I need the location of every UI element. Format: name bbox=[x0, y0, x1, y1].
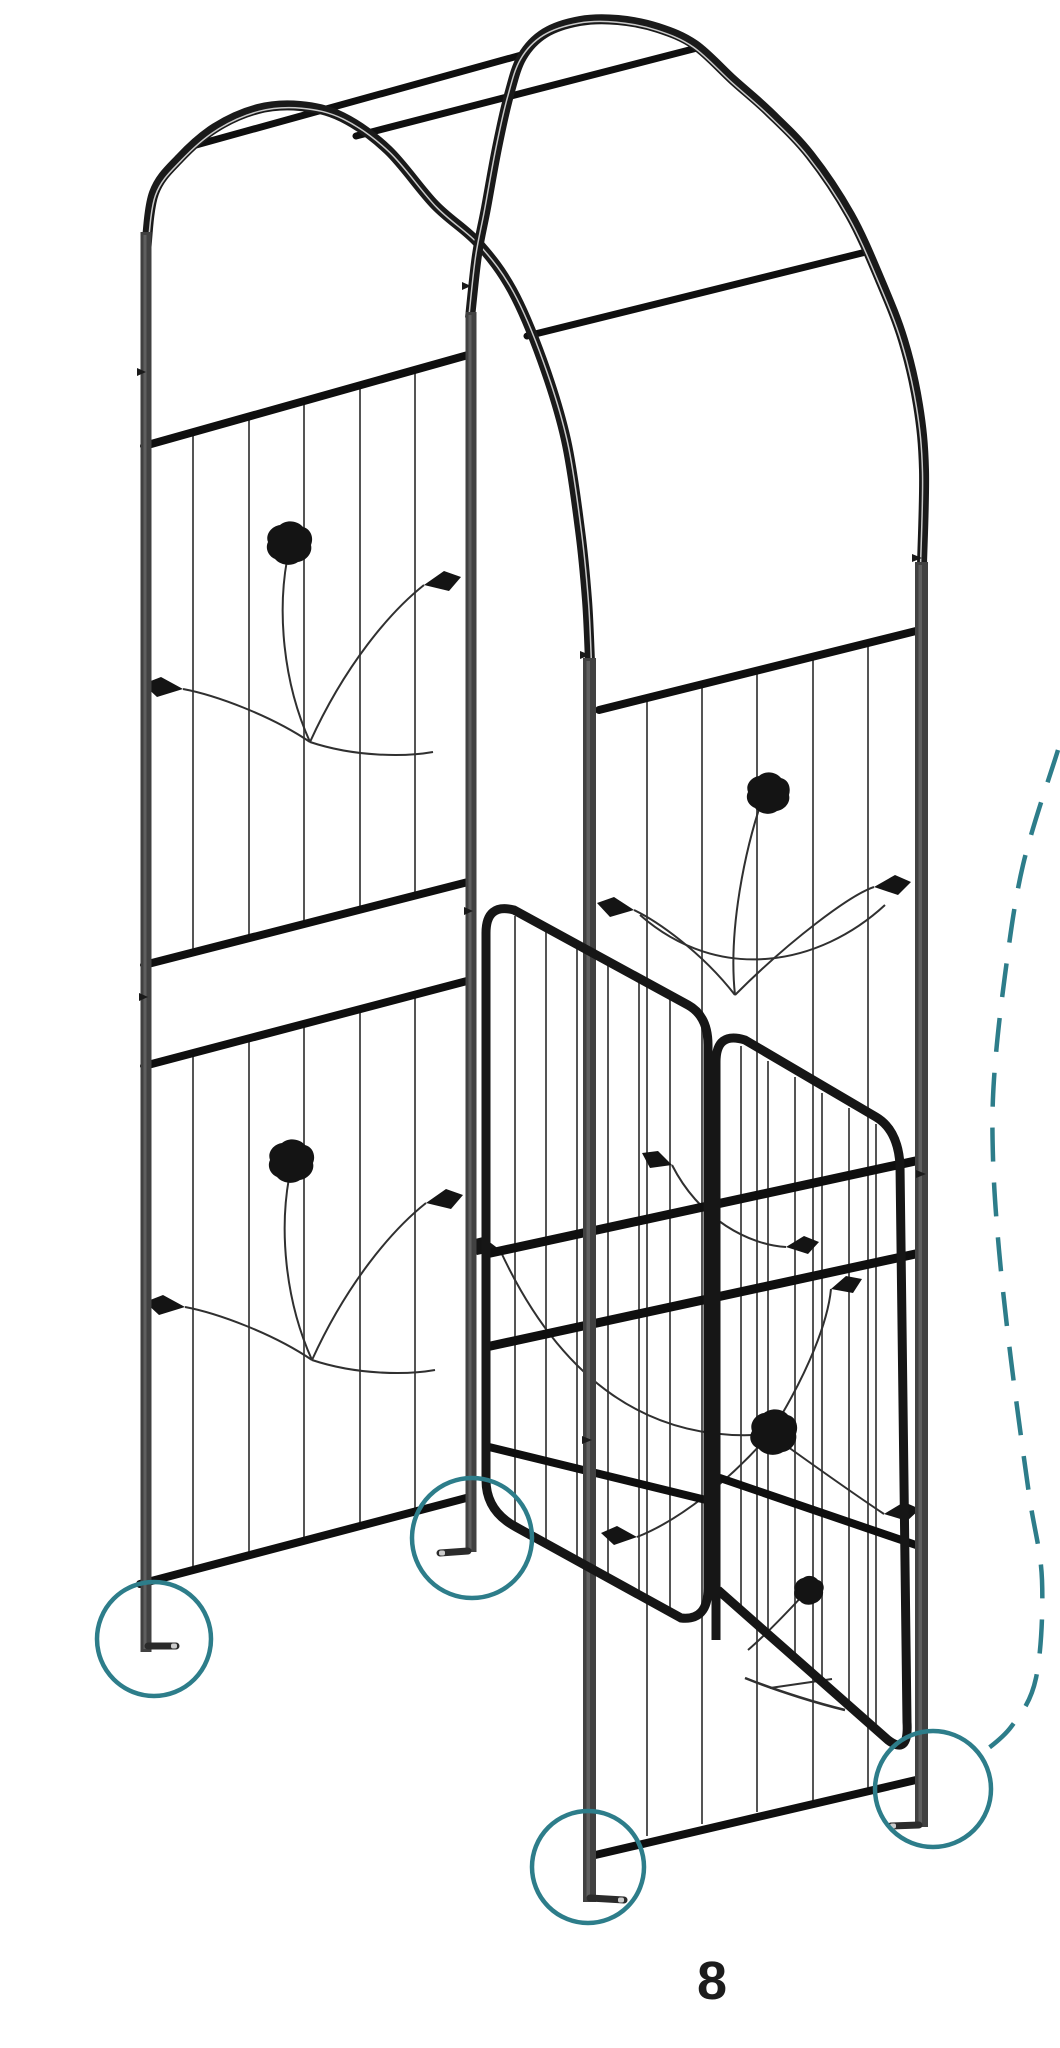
svg-text:8: 8 bbox=[697, 1951, 727, 2011]
